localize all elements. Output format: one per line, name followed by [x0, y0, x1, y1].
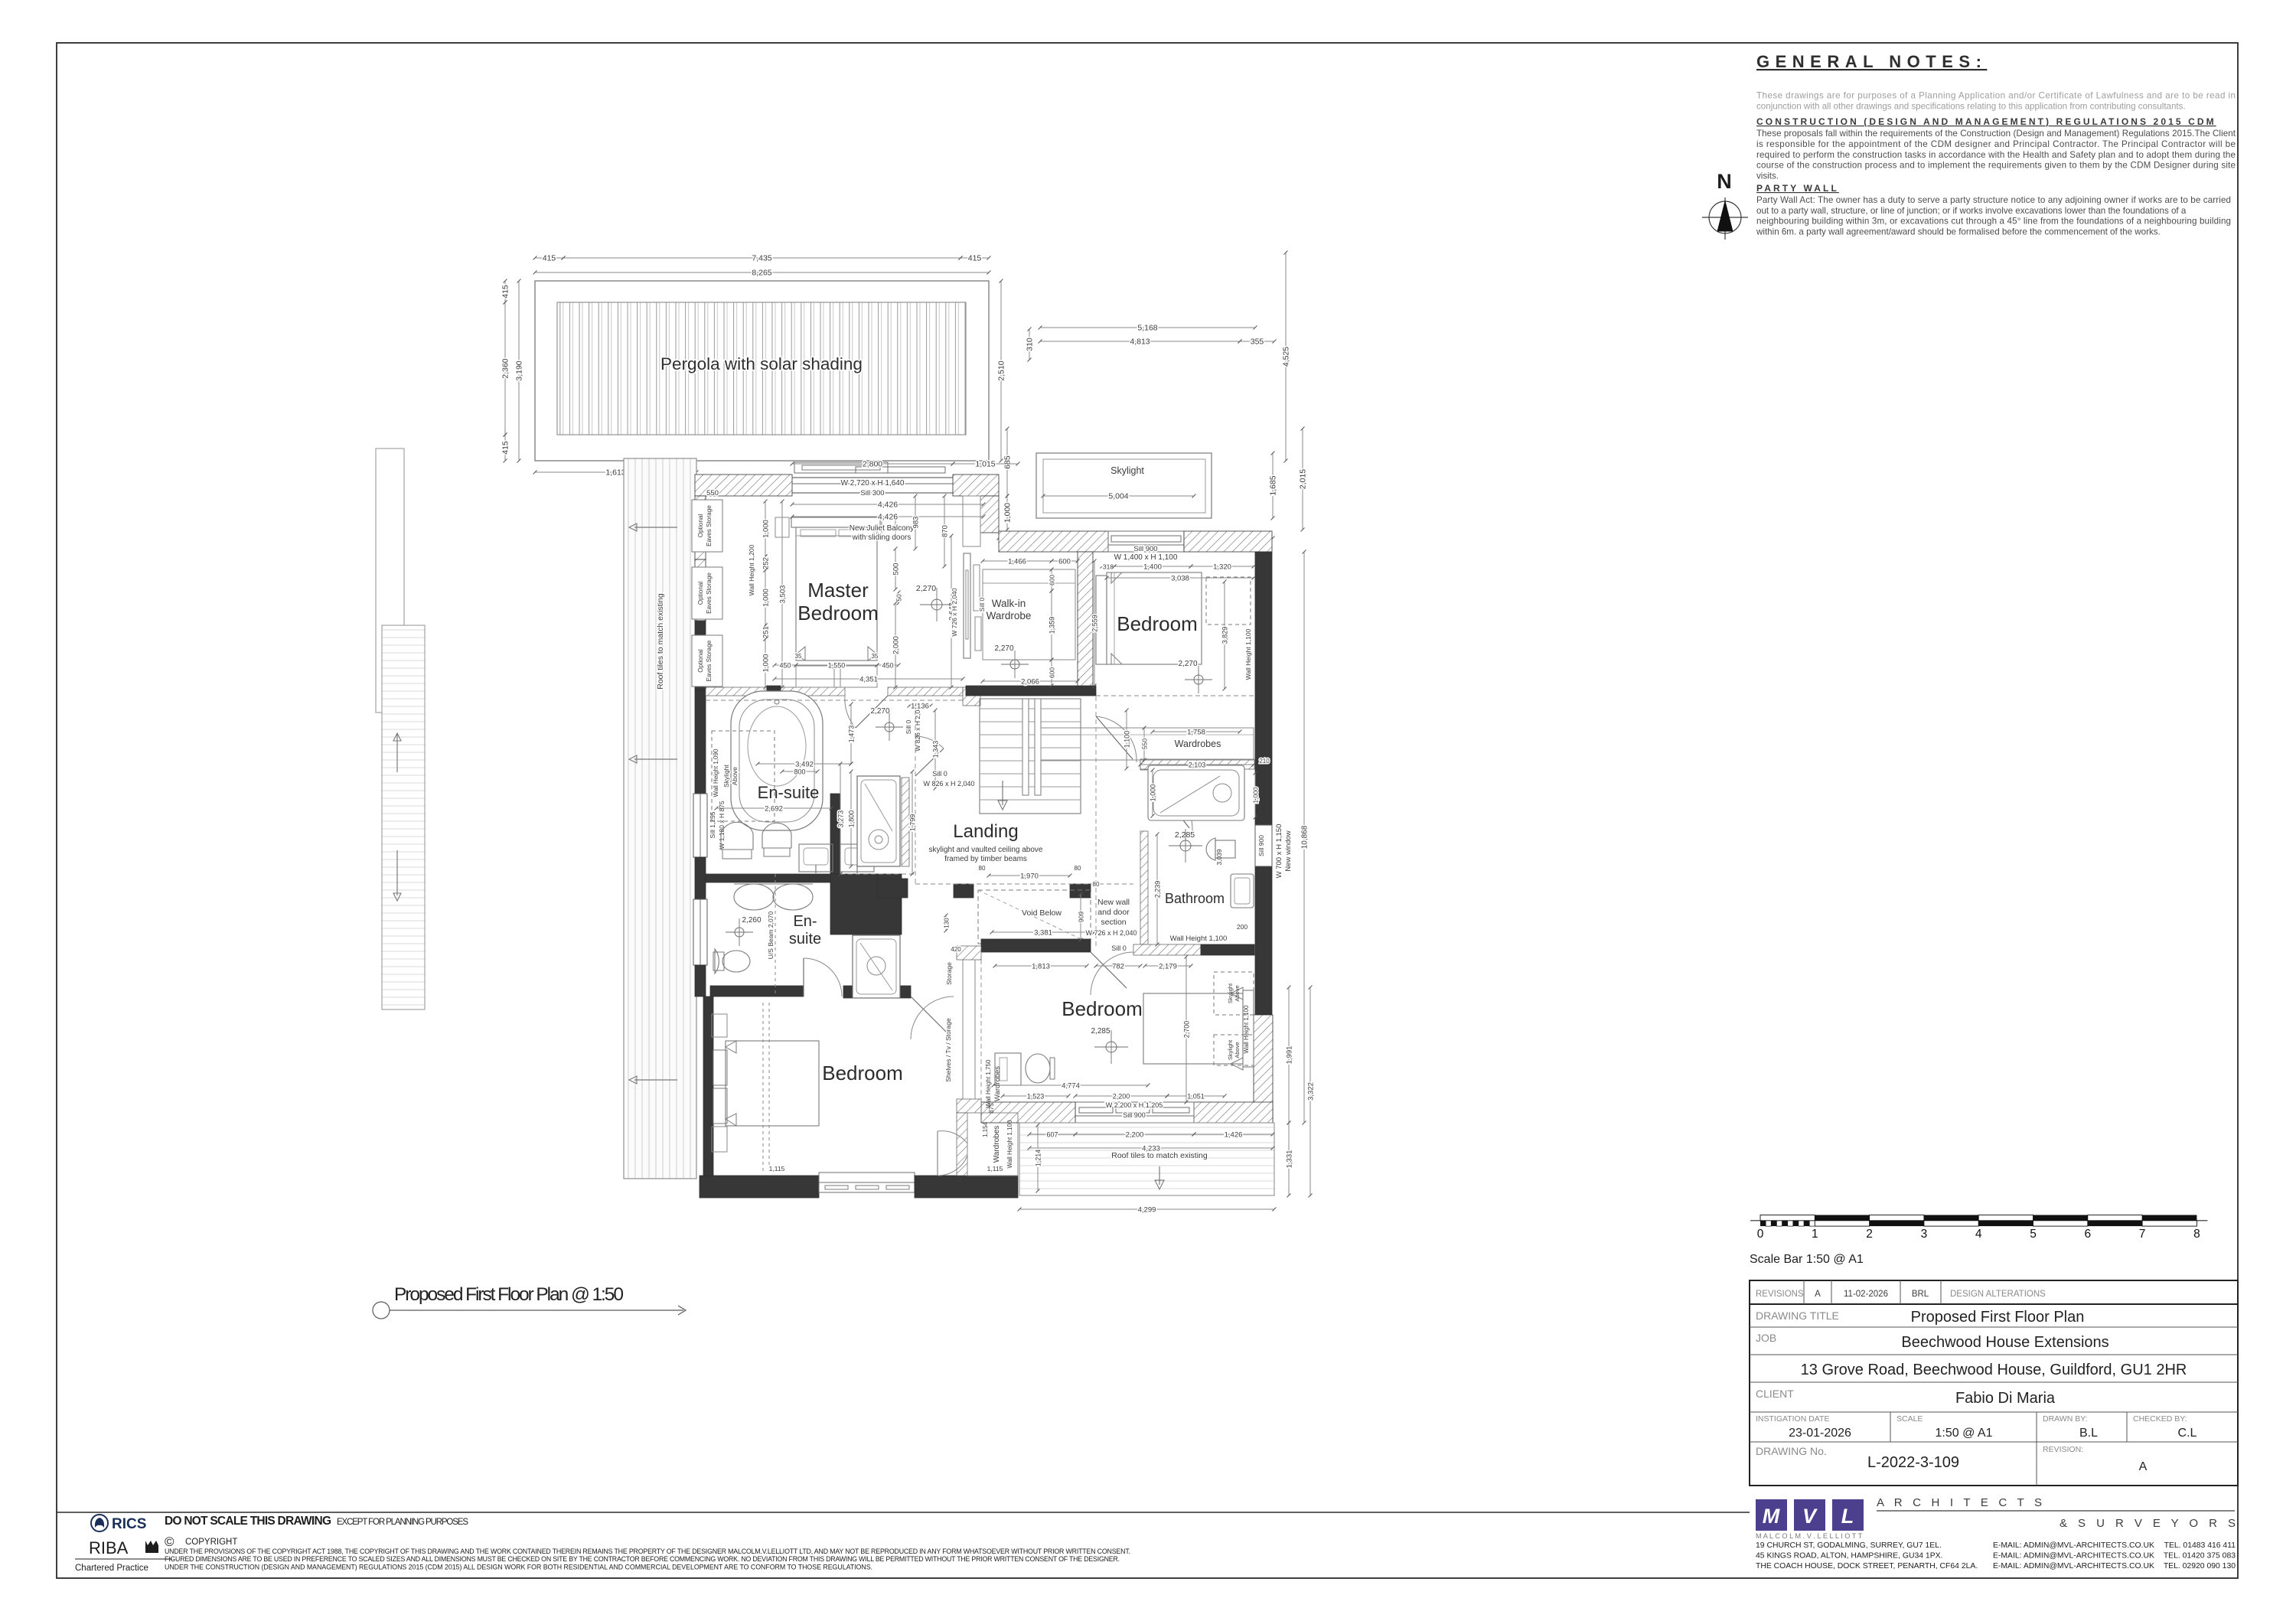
svg-text:Above: Above	[1234, 1042, 1241, 1058]
svg-text:1,051: 1,051	[1187, 1093, 1205, 1101]
svg-text:Above: Above	[1234, 985, 1241, 1001]
svg-text:Pergola with solar shading: Pergola with solar shading	[660, 354, 863, 373]
svg-text:6: 6	[2084, 1228, 2091, 1241]
svg-text:4,426: 4,426	[878, 513, 898, 522]
svg-text:50: 50	[895, 594, 903, 602]
svg-text:2,239: 2,239	[1154, 881, 1162, 899]
svg-text:3,039: 3,039	[1215, 849, 1223, 866]
svg-text:Bedroom: Bedroom	[822, 1062, 903, 1084]
svg-text:1,813: 1,813	[1032, 963, 1050, 971]
svg-text:1,331: 1,331	[1286, 1150, 1294, 1169]
svg-text:PARTY WALL: PARTY WALL	[1756, 183, 1839, 194]
svg-text:within 6m. a party wall agreem: within 6m. a party wall agreement/award …	[1756, 227, 2161, 236]
svg-text:Void Below: Void Below	[1022, 908, 1062, 918]
svg-text:DRAWN BY:: DRAWN BY:	[2043, 1414, 2088, 1424]
svg-text:415: 415	[501, 285, 510, 298]
svg-text:Bedroom: Bedroom	[1117, 612, 1198, 635]
svg-text:required to perform the constr: required to perform the construction tas…	[1756, 150, 2236, 160]
svg-text:Eaves Storage: Eaves Storage	[706, 505, 713, 546]
svg-text:Sill 0: Sill 0	[978, 598, 986, 612]
svg-text:35: 35	[872, 653, 879, 660]
svg-text:5,004: 5,004	[1108, 492, 1128, 501]
svg-text:Optional: Optional	[697, 582, 704, 605]
svg-text:M A L C O L M . V . L E L L I: M A L C O L M . V . L E L L I O T T	[1756, 1532, 1863, 1540]
svg-text:framed by timber beams: framed by timber beams	[944, 855, 1027, 863]
svg-text:550: 550	[706, 489, 719, 497]
svg-text:210: 210	[1259, 758, 1270, 765]
svg-text:3: 3	[1921, 1228, 1928, 1241]
svg-text:W 726 x H 2,040: W 726 x H 2,040	[1085, 929, 1137, 937]
svg-text:1,115: 1,115	[769, 1165, 785, 1173]
svg-text:Fabio Di Maria: Fabio Di Maria	[1955, 1390, 2056, 1407]
svg-text:4,813: 4,813	[1130, 338, 1150, 347]
svg-text:4,351: 4,351	[859, 676, 878, 684]
svg-text:3,322: 3,322	[1307, 1082, 1316, 1101]
svg-text:New wall: New wall	[1097, 898, 1130, 907]
svg-text:1,685: 1,685	[1269, 475, 1278, 495]
svg-text:DRAWING No.: DRAWING No.	[1756, 1445, 1827, 1457]
svg-text:GENERAL NOTES:: GENERAL NOTES:	[1756, 52, 1987, 71]
svg-text:1,343: 1,343	[932, 741, 940, 758]
svg-text:10,868: 10,868	[1301, 825, 1309, 849]
svg-text:45 KINGS ROAD, ALTON, HAMPSHIR: 45 KINGS ROAD, ALTON, HAMPSHIRE, GU34 1P…	[1756, 1552, 1942, 1561]
svg-text:1,400: 1,400	[1143, 563, 1162, 572]
svg-text:1,000: 1,000	[762, 589, 771, 607]
svg-text:REVISIONS: REVISIONS	[1756, 1290, 1804, 1299]
svg-text:4,525: 4,525	[1282, 347, 1291, 367]
svg-text:COPYRIGHT: COPYRIGHT	[185, 1538, 237, 1547]
svg-text:8,265: 8,265	[752, 269, 771, 278]
svg-text:2,700: 2,700	[1183, 1021, 1191, 1039]
svg-text:1,799: 1,799	[909, 814, 917, 832]
svg-text:W 826 x H 2,040: W 826 x H 2,040	[923, 780, 974, 788]
svg-text:Eaves Storage: Eaves Storage	[706, 640, 713, 681]
svg-text:E-MAIL: ADMIN@MVL-ARCHITECTS.C: E-MAIL: ADMIN@MVL-ARCHITECTS.CO.UK	[1993, 1562, 2154, 1570]
svg-text:550: 550	[1141, 739, 1149, 749]
svg-text:M: M	[1763, 1505, 1780, 1528]
svg-text:Wall Height 1,750: Wall Height 1,750	[985, 1059, 992, 1107]
svg-text:23-01-2026: 23-01-2026	[1789, 1427, 1851, 1440]
svg-text:Wardrobes: Wardrobes	[993, 1066, 1002, 1101]
svg-text:1,000: 1,000	[762, 654, 771, 673]
svg-text:1,466: 1,466	[1008, 558, 1026, 566]
svg-text:4,299: 4,299	[1138, 1206, 1156, 1215]
svg-text:1,154: 1,154	[982, 1121, 989, 1137]
svg-text:THE COACH HOUSE, DOCK STREET,: THE COACH HOUSE, DOCK STREET, PENARTH, C…	[1756, 1562, 1978, 1570]
svg-text:1,000: 1,000	[762, 520, 771, 538]
svg-text:CONSTRUCTION (DESIGN AND MANAG: CONSTRUCTION (DESIGN AND MANAGEMENT) REG…	[1756, 116, 2216, 127]
svg-text:2,260: 2,260	[742, 916, 761, 925]
svg-text:450: 450	[882, 662, 893, 670]
svg-text:5,168: 5,168	[1137, 324, 1157, 333]
svg-text:Skylight: Skylight	[1227, 983, 1234, 1003]
svg-text:Landing: Landing	[953, 821, 1018, 842]
svg-text:Sill 1,255: Sill 1,255	[709, 811, 716, 838]
svg-text:2,015: 2,015	[1299, 469, 1308, 489]
svg-text:W 700 x H 1,150: W 700 x H 1,150	[1275, 824, 1283, 879]
svg-text:200: 200	[1237, 923, 1247, 931]
svg-text:RIBA: RIBA	[89, 1538, 129, 1557]
svg-text:3,829: 3,829	[1221, 627, 1229, 644]
svg-text:4,774: 4,774	[1062, 1082, 1080, 1091]
svg-text:Storage: Storage	[945, 962, 953, 985]
svg-text:N: N	[1717, 170, 1732, 193]
svg-text:1,473: 1,473	[848, 726, 856, 743]
svg-text:1,320: 1,320	[1213, 563, 1231, 572]
svg-text:7: 7	[2139, 1228, 2146, 1241]
svg-text:3,190: 3,190	[515, 360, 524, 380]
svg-text:Sill 0: Sill 0	[905, 720, 912, 735]
svg-text:out to a party wall, structure: out to a party wall, structure, or line …	[1756, 206, 2187, 216]
svg-text:600: 600	[1049, 667, 1056, 678]
svg-text:782: 782	[1112, 963, 1124, 971]
svg-text:80: 80	[1093, 881, 1100, 888]
svg-text:80: 80	[1075, 865, 1081, 872]
svg-text:Optional: Optional	[697, 514, 704, 538]
svg-text:Sill 900: Sill 900	[1133, 545, 1157, 553]
svg-text:TEL. 01420 375 083: TEL. 01420 375 083	[2164, 1552, 2236, 1561]
svg-text:1,115: 1,115	[987, 1165, 1003, 1173]
svg-text:2,179: 2,179	[1159, 963, 1177, 971]
svg-text:2,692: 2,692	[765, 805, 783, 814]
svg-text:A: A	[1815, 1290, 1821, 1299]
svg-text:2,200: 2,200	[1113, 1093, 1130, 1101]
svg-text:1,800: 1,800	[848, 810, 856, 828]
svg-text:1,000: 1,000	[1252, 787, 1260, 804]
svg-text:1,991: 1,991	[1286, 1046, 1294, 1065]
svg-text:415: 415	[501, 441, 510, 455]
svg-text:L-2022-3-109: L-2022-3-109	[1867, 1454, 1959, 1471]
svg-text:New window: New window	[1284, 830, 1293, 871]
svg-text:1,000: 1,000	[1150, 784, 1157, 802]
svg-text:600: 600	[1049, 575, 1056, 585]
svg-text:450: 450	[779, 662, 791, 670]
svg-text:W 2,200 x H 1,205: W 2,200 x H 1,205	[1106, 1101, 1163, 1109]
svg-text:Master: Master	[807, 579, 869, 602]
svg-text:Sill 0: Sill 0	[1111, 944, 1127, 952]
svg-text:415: 415	[543, 254, 556, 263]
svg-text:1,000: 1,000	[1003, 503, 1013, 523]
svg-text:Wardrobe: Wardrobe	[987, 610, 1032, 621]
svg-text:Wall Height 1,100: Wall Height 1,100	[1243, 1005, 1250, 1053]
svg-text:13 Grove Road, Beechwood House: 13 Grove Road, Beechwood House, Guildfor…	[1801, 1362, 2187, 1378]
svg-text:2,285: 2,285	[1175, 830, 1195, 840]
svg-text:En-: En-	[793, 913, 817, 930]
svg-text:DO NOT SCALE THIS DRAWING: DO NOT SCALE THIS DRAWING	[165, 1515, 331, 1528]
svg-text:1: 1	[1812, 1228, 1818, 1241]
svg-text:500: 500	[892, 563, 901, 576]
svg-text:3,038: 3,038	[1171, 575, 1189, 583]
svg-text:INSTIGATION DATE: INSTIGATION DATE	[1756, 1414, 1829, 1424]
svg-text:251: 251	[762, 626, 771, 638]
svg-text:Skylight: Skylight	[722, 764, 730, 787]
svg-text:35: 35	[795, 653, 802, 660]
svg-text:conjunction with all other dra: conjunction with all other drawings and …	[1756, 101, 2186, 111]
svg-text:Bedroom: Bedroom	[797, 602, 879, 625]
svg-text:FIGURED DIMENSIONS ARE TO BE U: FIGURED DIMENSIONS ARE TO BE USED IN PRE…	[165, 1555, 1120, 1563]
svg-text:Wall Height 1,090: Wall Height 1,090	[713, 749, 719, 797]
svg-text:skylight and vaulted ceiling a: skylight and vaulted ceiling above	[929, 846, 1043, 854]
svg-text:1,613: 1,613	[605, 468, 625, 478]
svg-text:W 2,720 x H 1,640: W 2,720 x H 1,640	[841, 479, 905, 488]
svg-text:E-MAIL: ADMIN@MVL-ARCHITECTS.C: E-MAIL: ADMIN@MVL-ARCHITECTS.CO.UK	[1993, 1552, 2154, 1561]
svg-text:2,360: 2,360	[501, 358, 510, 378]
svg-text:EXCEPT FOR PLANNING PURPOSES: EXCEPT FOR PLANNING PURPOSES	[337, 1518, 468, 1527]
svg-text:Eaves Storage: Eaves Storage	[706, 572, 713, 614]
svg-text:A R C H I T E C T S: A R C H I T E C T S	[1877, 1496, 2042, 1509]
svg-text:En-suite: En-suite	[758, 783, 820, 802]
svg-text:Beechwood House Extensions: Beechwood House Extensions	[1901, 1334, 2108, 1351]
svg-text:Wardrobes: Wardrobes	[1175, 739, 1221, 749]
svg-text:Chartered Practice: Chartered Practice	[75, 1564, 148, 1573]
svg-text:UNDER THE PROVISIONS OF TH: UNDER THE PROVISIONS OF THE COPYRIGHT AC…	[165, 1548, 1130, 1555]
svg-text:These proposals fall within th: These proposals fall within the requirem…	[1756, 129, 2236, 139]
svg-text:1,214: 1,214	[1035, 1150, 1042, 1167]
svg-text:course of the construction pro: course of the construction process and t…	[1756, 161, 2236, 171]
svg-text:Optional: Optional	[697, 649, 704, 673]
svg-text:Sill 0: Sill 0	[932, 770, 947, 778]
svg-text:130: 130	[944, 918, 951, 928]
svg-text:4,233: 4,233	[1142, 1145, 1160, 1153]
svg-text:5: 5	[2030, 1228, 2037, 1241]
svg-text:Wall Height 1,200: Wall Height 1,200	[748, 544, 755, 595]
svg-text:1,359: 1,359	[1049, 617, 1056, 634]
svg-text:L: L	[1841, 1505, 1854, 1528]
svg-text:600: 600	[1058, 558, 1071, 566]
svg-text:800: 800	[794, 768, 805, 776]
svg-text:8: 8	[2193, 1228, 2200, 1241]
svg-text:Wall Height 1,100: Wall Height 1,100	[1244, 628, 1252, 680]
svg-text:1,970: 1,970	[1020, 872, 1039, 881]
svg-text:REVISION:: REVISION:	[2043, 1445, 2083, 1454]
svg-text:Party Wall Act: The owner has: Party Wall Act: The owner has a duty to …	[1756, 195, 2231, 205]
svg-text:TEL. 01483 416 411: TEL. 01483 416 411	[2164, 1541, 2236, 1550]
svg-text:2,800: 2,800	[863, 460, 882, 469]
svg-text:Roof tiles to match existing: Roof tiles to match existing	[656, 593, 665, 690]
svg-text:These drawings are for purpose: These drawings are for purposes of a Pla…	[1756, 91, 2236, 101]
svg-text:RICS: RICS	[112, 1516, 146, 1532]
svg-text:is responsible for the appoint: is responsible for the appointment of th…	[1756, 139, 2236, 149]
svg-text:7,435: 7,435	[752, 254, 771, 263]
svg-text:A: A	[2139, 1460, 2148, 1473]
svg-text:310: 310	[1026, 338, 1035, 351]
svg-text:and door: and door	[1097, 908, 1130, 917]
svg-text:Skylight: Skylight	[1227, 1039, 1234, 1060]
svg-text:415: 415	[968, 254, 982, 263]
svg-text:Proposed First Floor Plan @ 1:: Proposed First Floor Plan @ 1:50	[394, 1284, 624, 1305]
svg-text:Walk-in: Walk-in	[992, 598, 1026, 609]
svg-text:1,426: 1,426	[1225, 1131, 1243, 1140]
svg-text:2,270: 2,270	[1178, 660, 1197, 668]
svg-text:with sliding doors: with sliding doors	[852, 533, 912, 542]
svg-text:3,273: 3,273	[837, 810, 845, 828]
svg-text:Sill 900: Sill 900	[1257, 835, 1265, 856]
svg-text:1:50 @ A1: 1:50 @ A1	[1936, 1427, 1993, 1440]
svg-text:BRL: BRL	[1912, 1290, 1929, 1299]
svg-text:Bedroom: Bedroom	[1062, 997, 1143, 1020]
svg-text:Skylight: Skylight	[1110, 465, 1144, 476]
svg-text:Proposed First Floor Plan: Proposed First Floor Plan	[1911, 1309, 2085, 1326]
svg-text:suite: suite	[789, 931, 821, 947]
svg-text:3,381: 3,381	[1034, 929, 1052, 938]
svg-text:607: 607	[1046, 1131, 1058, 1139]
svg-text:252: 252	[762, 557, 771, 569]
svg-text:318: 318	[1103, 563, 1114, 571]
svg-text:2,285: 2,285	[1091, 1027, 1110, 1036]
svg-text:Sill 300: Sill 300	[860, 489, 884, 497]
svg-text:1,758: 1,758	[1187, 729, 1205, 737]
svg-text:2,103: 2,103	[1189, 762, 1206, 769]
svg-text:420: 420	[951, 946, 961, 953]
svg-text:0: 0	[1757, 1228, 1764, 1241]
svg-text:1,015: 1,015	[975, 460, 995, 469]
svg-text:Wall Height 1,100: Wall Height 1,100	[1170, 934, 1228, 943]
svg-text:1,550: 1,550	[828, 662, 846, 670]
svg-text:2,270: 2,270	[870, 707, 889, 716]
svg-text:V: V	[1802, 1505, 1818, 1528]
svg-text:New Juliet Balcony: New Juliet Balcony	[850, 524, 914, 533]
svg-text:Sill 900: Sill 900	[1123, 1111, 1146, 1119]
svg-text:4,426: 4,426	[878, 501, 898, 510]
svg-text:2,559: 2,559	[1091, 615, 1099, 632]
svg-text:Above: Above	[731, 767, 739, 785]
svg-text:2,000: 2,000	[892, 636, 901, 654]
svg-text:2: 2	[1866, 1228, 1873, 1241]
svg-text:4: 4	[1975, 1228, 1982, 1241]
svg-text:Wardrobes: Wardrobes	[993, 1126, 1001, 1163]
svg-text:355: 355	[1251, 338, 1264, 347]
svg-text:2,066: 2,066	[1021, 678, 1039, 687]
svg-text:3,503: 3,503	[779, 585, 788, 604]
svg-text:2,270: 2,270	[916, 584, 936, 593]
svg-text:1,136: 1,136	[911, 703, 929, 711]
svg-text:2,270: 2,270	[994, 644, 1013, 653]
svg-text:2,510: 2,510	[997, 360, 1006, 380]
svg-text:1,523: 1,523	[1027, 1093, 1045, 1101]
svg-text:JOB: JOB	[1756, 1332, 1776, 1344]
svg-text:909: 909	[1078, 912, 1085, 922]
svg-text:visits.: visits.	[1756, 171, 1779, 181]
svg-text:2,200: 2,200	[1126, 1131, 1144, 1140]
svg-text:1,100: 1,100	[1124, 731, 1131, 749]
svg-text:Bathroom: Bathroom	[1165, 891, 1225, 906]
svg-text:983: 983	[912, 517, 921, 529]
svg-text:section: section	[1101, 918, 1126, 927]
svg-text:TEL. 02920 090 130: TEL. 02920 090 130	[2164, 1562, 2236, 1570]
svg-text:80: 80	[979, 865, 986, 872]
svg-text:DRAWING TITLE: DRAWING TITLE	[1756, 1310, 1839, 1322]
svg-text:Scale Bar 1:50 @ A1: Scale Bar 1:50 @ A1	[1750, 1253, 1864, 1266]
svg-text:W 1,400 x H 1,100: W 1,400 x H 1,100	[1114, 553, 1178, 562]
svg-text:neighbouring building within 3: neighbouring building within 3m, or exca…	[1756, 217, 2231, 227]
svg-text:11-02-2026: 11-02-2026	[1844, 1290, 1888, 1299]
svg-text:C.L: C.L	[2178, 1427, 2197, 1440]
svg-text:685: 685	[1003, 455, 1013, 469]
svg-text:CHECKED BY:: CHECKED BY:	[2133, 1414, 2187, 1424]
svg-text:W 726 x H 2,040: W 726 x H 2,040	[951, 588, 958, 637]
svg-text:Wall Height 1,100: Wall Height 1,100	[1006, 1120, 1013, 1168]
svg-text:SCALE: SCALE	[1896, 1414, 1923, 1424]
svg-text:19 CHURCH ST, GODALMING, SURRE: 19 CHURCH ST, GODALMING, SURREY, GU7 1EL…	[1756, 1541, 1942, 1550]
svg-text:CLIENT: CLIENT	[1756, 1388, 1794, 1400]
svg-text:870: 870	[941, 525, 950, 537]
svg-text:B.L: B.L	[2079, 1427, 2098, 1440]
svg-text:DESIGN ALTERATIONS: DESIGN ALTERATIONS	[1950, 1290, 2046, 1299]
svg-text:Shelves / Tv / Storage: Shelves / Tv / Storage	[944, 1018, 952, 1082]
svg-text:E-MAIL: ADMIN@MVL-ARCHITECTS.C: E-MAIL: ADMIN@MVL-ARCHITECTS.CO.UK	[1993, 1541, 2154, 1550]
svg-text:UNDER THE CONSTRUCTION (DESIGN: UNDER THE CONSTRUCTION (DESIGN AND MANAG…	[165, 1563, 872, 1570]
svg-text:U/S Beam 2,070: U/S Beam 2,070	[767, 912, 775, 960]
